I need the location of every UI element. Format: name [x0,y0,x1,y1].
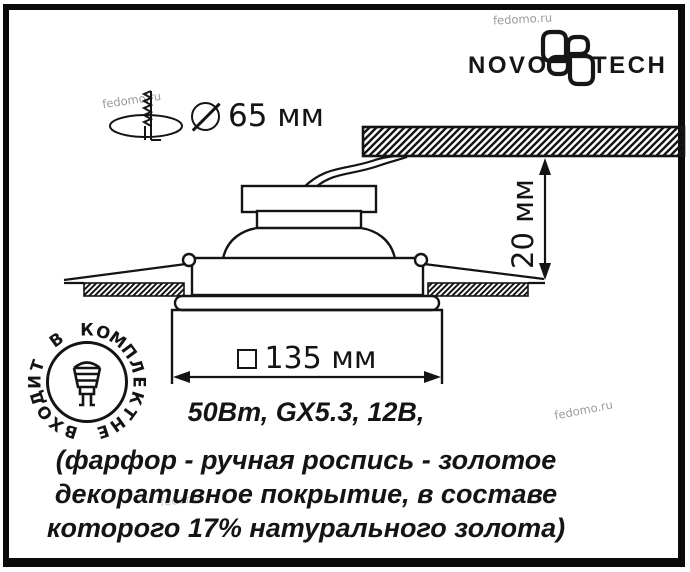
not-included-stamp: НЕ ВХОДИТ В КОМПЛЕКТ [12,307,162,457]
lamp-spec-line: 50Вт, GX5.3, 12В, [0,397,612,428]
material-description-line1: (фарфор - ручная роспись - золотое [0,443,612,477]
recess-depth-label: 20 мм [506,168,542,280]
porcelain-dome [223,228,395,259]
junction-box [242,186,376,229]
recessed-housing [192,258,423,295]
trim-flange [175,296,439,310]
material-description-line2: декоративное покрытие, в составе [0,477,612,511]
material-description: (фарфор - ручная роспись - золотое декор… [0,443,612,545]
square-symbol [237,349,257,369]
supply-wire [304,156,407,187]
face-size-value: 135 мм [264,341,376,376]
face-size-label: 135 мм [172,341,442,376]
ceiling-slab [363,127,684,156]
material-description-line3: которого 17% натурального золота) [0,511,612,545]
